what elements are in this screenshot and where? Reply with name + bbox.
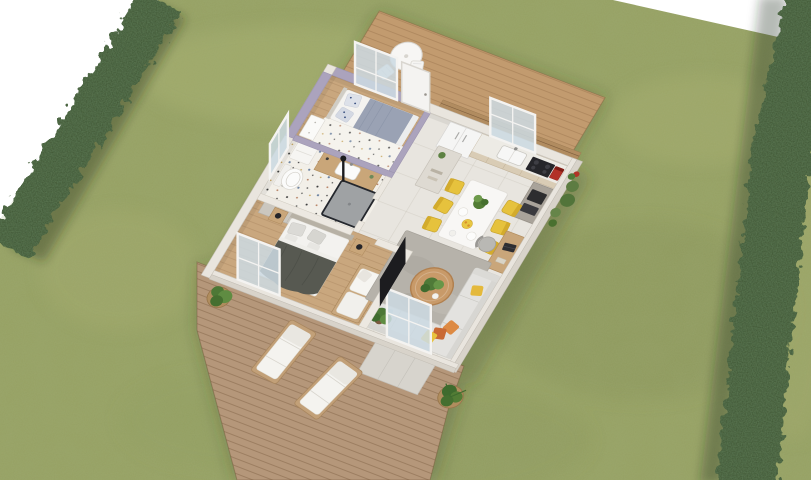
floor-plan-render: [0, 0, 811, 480]
pillow-yellow: [470, 285, 484, 296]
scene-canvas: [0, 0, 811, 480]
